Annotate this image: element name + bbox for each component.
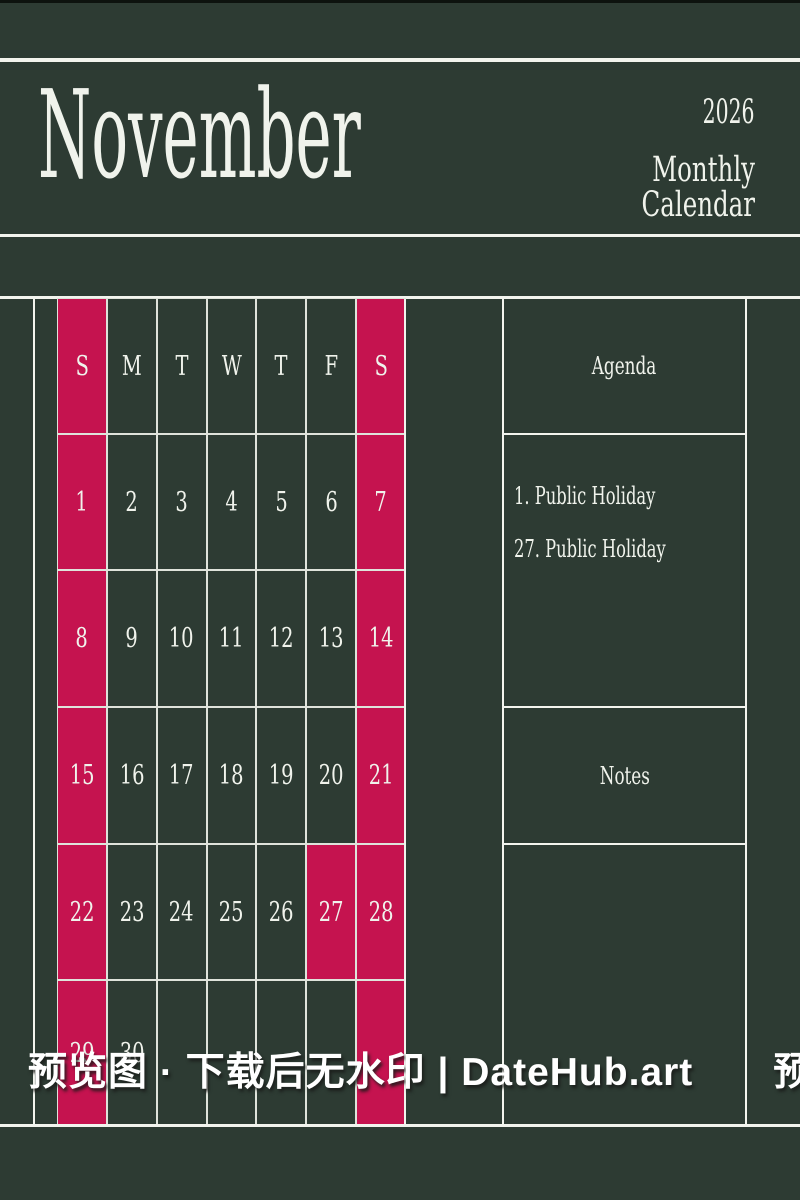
day-cell: 24 [158, 845, 206, 979]
day-cell: 2 [108, 435, 156, 569]
day-cell: 8 [58, 571, 106, 706]
weekday-label: M [122, 351, 142, 382]
agenda-title: Agenda [592, 352, 656, 380]
calendar-page: November 2026 Monthly Calendar SMTWTFS12… [0, 0, 800, 1200]
day-cell: 27 [307, 845, 355, 979]
day-cell: 7 [357, 435, 405, 569]
weekday-label: F [324, 351, 337, 382]
day-number: 7 [375, 487, 387, 518]
year-line: 2026 [435, 95, 755, 129]
day-cell: 5 [257, 435, 305, 569]
day-cell: 19 [257, 708, 305, 843]
day-cell: 3 [158, 435, 206, 569]
day-number: 8 [76, 623, 88, 654]
day-number: 2 [126, 487, 138, 518]
day-cell: 11 [208, 571, 256, 706]
year-label: 2026 [703, 95, 755, 129]
day-number: 4 [225, 487, 237, 518]
day-number: 13 [319, 623, 344, 654]
agenda-item: 27. Public Holiday [514, 523, 737, 576]
calendar-grid: SMTWTFS123456789101112131415161718192021… [58, 299, 405, 1125]
grid-bottom-border [0, 1124, 800, 1127]
day-number: 22 [70, 897, 95, 928]
day-cell: 14 [357, 571, 405, 706]
header-bottom-divider [0, 234, 800, 237]
agenda-items: 1. Public Holiday 27. Public Holiday [514, 470, 737, 576]
agenda-item-label: 27. Public Holiday [514, 523, 666, 576]
subtitle-label: Monthly Calendar [531, 153, 755, 223]
day-cell: 25 [208, 845, 256, 979]
watermark-text: 预览图 · 下载后无水印 | DateHub.art 预览图 · [28, 1050, 800, 1097]
agenda-item-label: 1. Public Holiday [514, 470, 655, 523]
weekday-header-cell: F [307, 299, 355, 433]
day-number: 18 [219, 760, 244, 791]
day-number: 12 [269, 623, 294, 654]
day-number: 20 [319, 760, 344, 791]
day-cell: 16 [108, 708, 156, 843]
day-cell: 4 [208, 435, 256, 569]
subtitle-line: Monthly Calendar [435, 153, 755, 223]
day-cell: 20 [307, 708, 355, 843]
day-cell: 13 [307, 571, 355, 706]
day-number: 14 [369, 623, 394, 654]
day-number: 17 [169, 760, 194, 791]
weekday-header-cell: W [208, 299, 256, 433]
day-number: 11 [219, 623, 244, 654]
day-number: 24 [169, 897, 194, 928]
day-cell: 28 [357, 845, 405, 979]
day-cell: 23 [108, 845, 156, 979]
weekday-header-cell: T [257, 299, 305, 433]
top-black-strip [0, 0, 800, 3]
day-number: 19 [269, 760, 294, 791]
day-number: 23 [119, 897, 144, 928]
day-cell: 12 [257, 571, 305, 706]
weekday-label: W [221, 351, 241, 382]
notes-header-divider [502, 843, 747, 845]
day-number: 15 [70, 760, 95, 791]
weekday-label: S [75, 351, 88, 382]
day-cell: 10 [158, 571, 206, 706]
weekday-header-cell: M [108, 299, 156, 433]
day-number: 5 [275, 487, 287, 518]
header-top-divider [0, 58, 800, 62]
weekday-header-cell: T [158, 299, 206, 433]
day-number: 9 [126, 623, 138, 654]
day-number: 21 [369, 760, 394, 791]
day-cell: 18 [208, 708, 256, 843]
page-left-rule [33, 296, 35, 1127]
day-number: 10 [169, 623, 194, 654]
notes-header-box: Notes [502, 708, 747, 843]
day-cell: 15 [58, 708, 106, 843]
month-title: November [38, 74, 361, 196]
agenda-item: 1. Public Holiday [514, 470, 737, 523]
weekday-label: T [175, 351, 188, 382]
day-number: 25 [219, 897, 244, 928]
day-cell: 26 [257, 845, 305, 979]
day-cell: 22 [58, 845, 106, 979]
agenda-header-box: Agenda [502, 299, 747, 433]
day-cell: 9 [108, 571, 156, 706]
day-number: 6 [325, 487, 337, 518]
notes-title: Notes [599, 762, 649, 790]
weekday-label: S [374, 351, 387, 382]
day-cell: 21 [357, 708, 405, 843]
weekday-header-cell: S [357, 299, 405, 433]
agenda-header-divider [502, 433, 747, 435]
day-number: 28 [369, 897, 394, 928]
day-number: 27 [319, 897, 344, 928]
weekday-header-cell: S [58, 299, 106, 433]
day-cell: 6 [307, 435, 355, 569]
day-number: 3 [175, 487, 187, 518]
grid-right-border [404, 299, 406, 1125]
day-number: 26 [269, 897, 294, 928]
day-cell: 17 [158, 708, 206, 843]
day-number: 1 [76, 487, 88, 518]
day-number: 16 [119, 760, 144, 791]
weekday-label: T [275, 351, 288, 382]
header-right-block: 2026 Monthly Calendar [435, 95, 755, 223]
day-cell: 1 [58, 435, 106, 569]
